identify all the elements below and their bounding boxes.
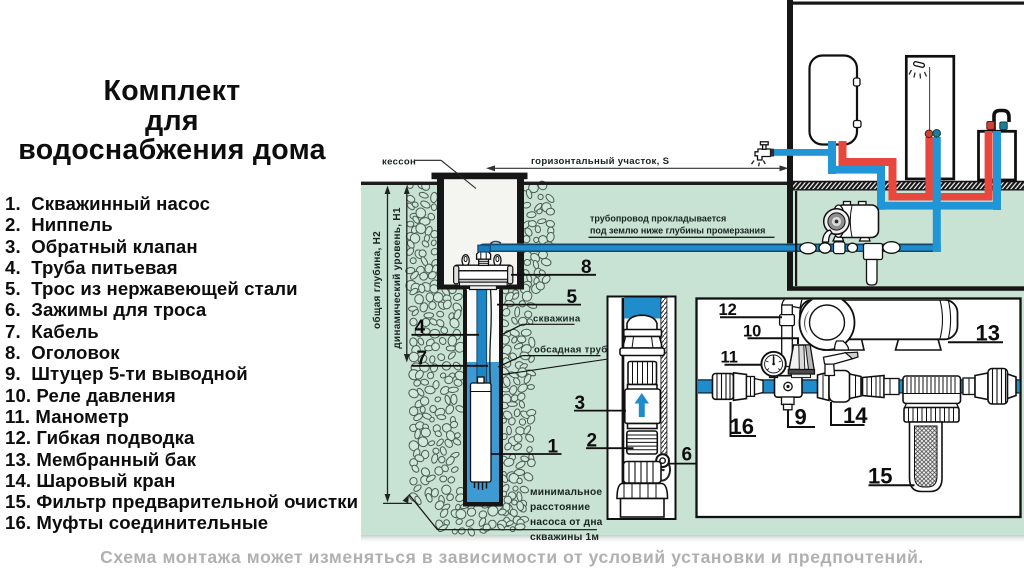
svg-text:1: 1 (548, 436, 559, 457)
svg-text:11: 11 (721, 349, 738, 367)
svg-text:динамический уровень, Н1: динамический уровень, Н1 (392, 207, 403, 349)
svg-text:3: 3 (575, 393, 586, 414)
svg-text:2: 2 (587, 431, 598, 452)
svg-text:под землю ниже глубины промерз: под землю ниже глубины промерзания (590, 225, 765, 235)
svg-text:5: 5 (567, 287, 578, 308)
svg-text:12: 12 (719, 301, 737, 319)
svg-text:13: 13 (976, 320, 1000, 345)
svg-text:насоса от дна: насоса от дна (530, 517, 603, 528)
svg-text:6: 6 (682, 445, 693, 466)
svg-text:горизонтальный участок, S: горизонтальный участок, S (531, 156, 670, 167)
svg-text:кессон: кессон (382, 157, 416, 168)
svg-text:минимальное: минимальное (530, 487, 602, 498)
svg-text:общая глубина, Н2: общая глубина, Н2 (371, 231, 383, 329)
svg-text:трубопровод прокладывается: трубопровод прокладывается (590, 214, 726, 224)
svg-text:8: 8 (581, 257, 592, 278)
svg-text:расстояние: расстояние (530, 502, 590, 513)
svg-text:4: 4 (415, 317, 426, 338)
svg-text:9: 9 (795, 405, 807, 430)
svg-text:обсадная труба: обсадная труба (534, 344, 614, 355)
svg-text:скважина: скважина (533, 314, 581, 325)
svg-text:15: 15 (868, 463, 892, 488)
svg-text:скважины 1м: скважины 1м (530, 532, 599, 543)
svg-text:10: 10 (743, 323, 761, 341)
svg-text:14: 14 (843, 403, 868, 428)
svg-text:16: 16 (730, 414, 754, 439)
svg-text:7: 7 (417, 348, 428, 369)
